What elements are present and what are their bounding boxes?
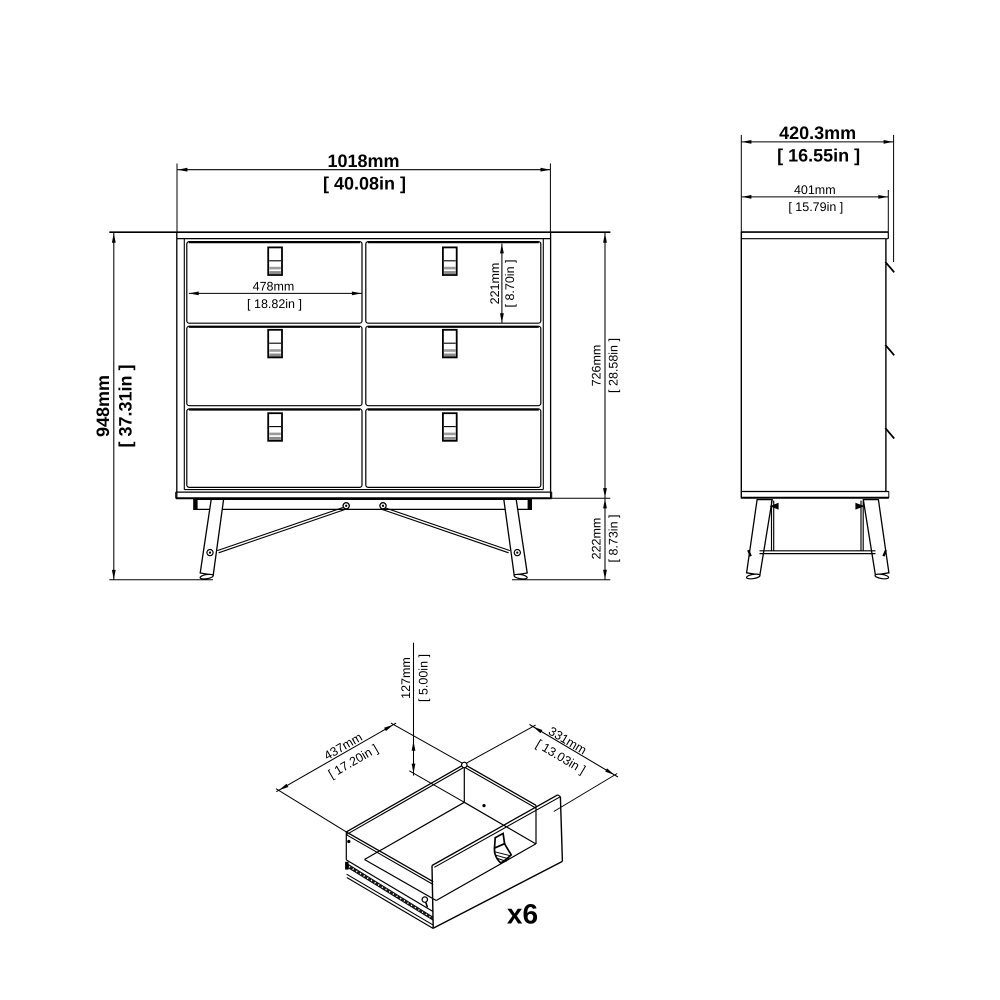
svg-text:[ 40.08in ]: [ 40.08in ] bbox=[323, 174, 406, 194]
svg-text:222mm: 222mm bbox=[590, 518, 604, 560]
svg-text:1018mm: 1018mm bbox=[327, 151, 399, 171]
svg-text:[ 18.82in ]: [ 18.82in ] bbox=[247, 297, 302, 311]
svg-text:420.3mm: 420.3mm bbox=[779, 123, 856, 143]
svg-text:[ 16.55in ]: [ 16.55in ] bbox=[777, 146, 860, 166]
svg-text:[ 8.73in ]: [ 8.73in ] bbox=[606, 515, 620, 563]
svg-text:401mm: 401mm bbox=[794, 183, 836, 197]
svg-text:221mm: 221mm bbox=[488, 263, 502, 305]
svg-text:[ 15.79in ]: [ 15.79in ] bbox=[788, 200, 843, 214]
svg-text:726mm: 726mm bbox=[590, 345, 604, 387]
svg-text:[ 28.58in ]: [ 28.58in ] bbox=[606, 338, 620, 393]
svg-text:[ 5.00in ]: [ 5.00in ] bbox=[416, 654, 430, 702]
svg-text:[ 37.31in ]: [ 37.31in ] bbox=[116, 364, 136, 447]
svg-text:x6: x6 bbox=[507, 899, 538, 930]
svg-text:948mm: 948mm bbox=[93, 375, 113, 437]
svg-text:127mm: 127mm bbox=[399, 657, 413, 699]
svg-text:[ 8.70in ]: [ 8.70in ] bbox=[503, 260, 517, 308]
svg-text:478mm: 478mm bbox=[253, 279, 295, 293]
